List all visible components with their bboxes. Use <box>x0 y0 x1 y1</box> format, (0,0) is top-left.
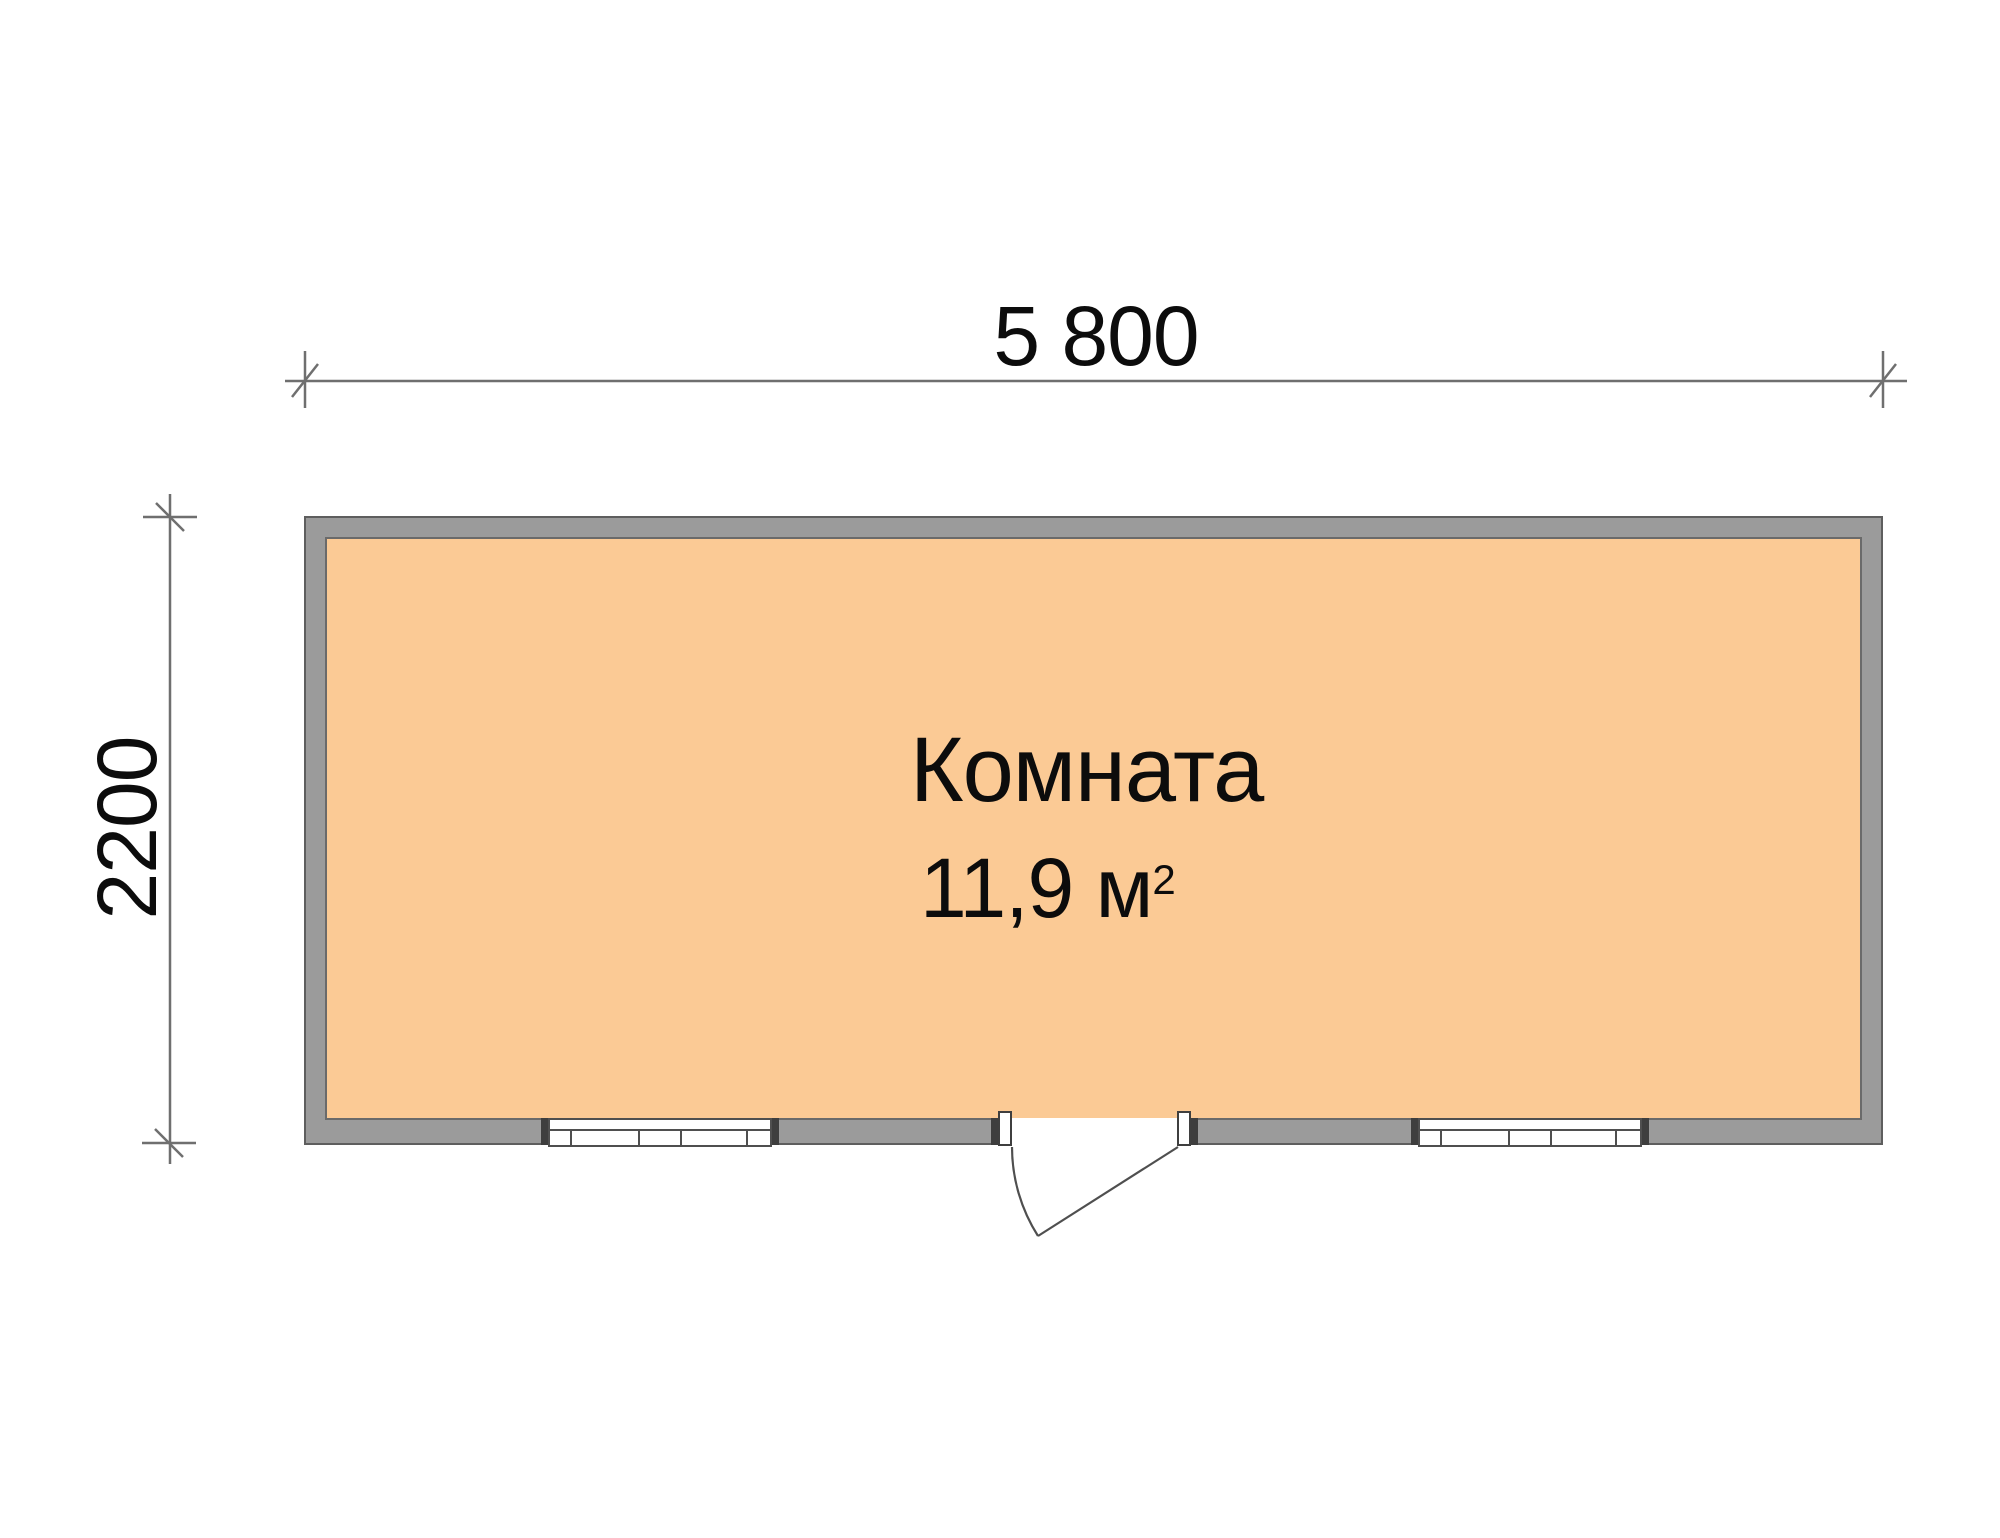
window-mullion <box>1508 1129 1510 1145</box>
wall-end-cap <box>772 1118 779 1145</box>
wall-end-cap <box>1642 1118 1649 1145</box>
window-mullion <box>1550 1129 1552 1145</box>
floorplan-canvas: 5 800 2200 Комната 11,9 м2 <box>0 0 2000 1538</box>
dimension-tick <box>155 1129 183 1157</box>
dimension-tick <box>156 503 184 531</box>
room-area-label: 11,9 м2 <box>920 846 1175 930</box>
room-area-value: 11,9 м <box>920 841 1152 935</box>
window-sill-line <box>550 1129 770 1131</box>
door-swing-arc <box>1012 1147 1038 1236</box>
window-mullion <box>1615 1129 1617 1145</box>
window-mullion <box>1440 1129 1442 1145</box>
dimension-tick <box>1870 364 1896 397</box>
height-dimension-label: 2200 <box>85 737 169 920</box>
room-name-label: Комната <box>910 724 1263 816</box>
door-jamb-right <box>1177 1111 1191 1146</box>
window-mullion <box>638 1129 640 1145</box>
window-mullion <box>746 1129 748 1145</box>
door-jamb-left <box>998 1111 1012 1146</box>
width-dimension-label: 5 800 <box>993 294 1198 378</box>
wall-end-cap <box>1191 1118 1198 1145</box>
door-opening <box>1012 1118 1178 1149</box>
wall-end-cap <box>1411 1118 1418 1145</box>
window-sill-line <box>1420 1129 1640 1131</box>
window-mullion <box>680 1129 682 1145</box>
wall-end-cap <box>991 1118 998 1145</box>
window-left <box>548 1118 772 1147</box>
room-floor <box>325 537 1862 1120</box>
window-mullion <box>570 1129 572 1145</box>
wall-end-cap <box>541 1118 548 1145</box>
window-right <box>1418 1118 1642 1147</box>
door-leaf-line <box>1038 1147 1178 1236</box>
dimension-tick <box>292 364 318 397</box>
room-area-superscript: 2 <box>1152 856 1174 903</box>
